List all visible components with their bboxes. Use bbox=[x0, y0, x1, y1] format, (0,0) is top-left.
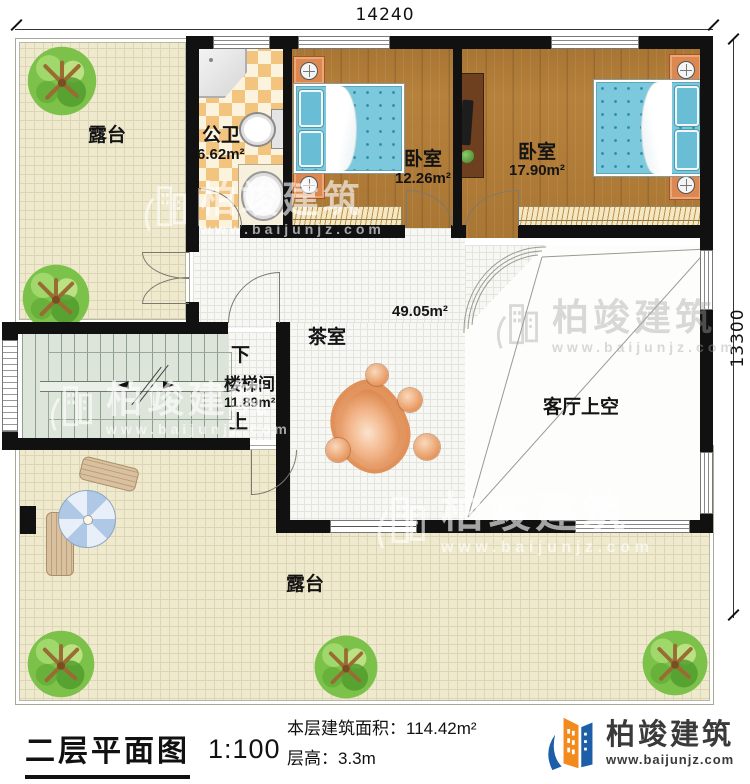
wall-pier bbox=[2, 432, 18, 450]
void-boundary-lines bbox=[460, 243, 713, 523]
tree-icon bbox=[25, 628, 97, 700]
window-icon bbox=[575, 520, 690, 533]
plan-scale: 1:100 bbox=[208, 734, 281, 765]
toilet-bowl-icon bbox=[239, 112, 276, 147]
bedroom-left-area: 12.26m² bbox=[395, 171, 451, 186]
nightstand-lamp-icon bbox=[293, 170, 325, 199]
stair-handrail bbox=[40, 381, 230, 392]
floor-height-value: 3.3m bbox=[338, 749, 376, 768]
bedroom-right-area: 17.90m² bbox=[509, 163, 565, 178]
window-icon bbox=[700, 452, 713, 514]
stool-icon bbox=[414, 434, 440, 460]
terrace-bottom-label: 露台 bbox=[286, 575, 324, 594]
wall-segment bbox=[690, 520, 713, 533]
stair-direction-arrow-icon bbox=[163, 381, 174, 389]
nightstand-lamp-icon bbox=[293, 56, 325, 85]
wall-segment bbox=[276, 322, 290, 533]
stool-icon bbox=[366, 364, 388, 386]
window-icon bbox=[700, 250, 713, 310]
wall-segment bbox=[283, 36, 292, 228]
parasol-icon bbox=[58, 490, 116, 548]
wall-segment bbox=[240, 225, 405, 238]
wall-segment bbox=[15, 322, 228, 334]
floor-area-label: 本层建筑面积： bbox=[287, 719, 406, 738]
terrace-top-label: 露台 bbox=[88, 126, 126, 145]
brand-logo: 柏竣建筑 www.baijunjz.com bbox=[543, 712, 734, 774]
double-bed-icon bbox=[294, 84, 404, 173]
window-icon bbox=[213, 36, 270, 49]
tea-room-area: 49.05m² bbox=[392, 304, 448, 319]
dimension-tick-icon bbox=[707, 19, 719, 31]
shower-drain-icon bbox=[209, 58, 213, 62]
tree-icon bbox=[312, 632, 380, 702]
double-bed-icon bbox=[594, 80, 704, 176]
floor-area-value: 114.42m² bbox=[406, 719, 477, 738]
floor-plan-canvas: 14240 13300 bbox=[0, 0, 750, 784]
dimension-width: 14240 bbox=[330, 5, 440, 25]
brand-name: 柏竣建筑 bbox=[606, 721, 734, 750]
wall-pier bbox=[2, 322, 18, 340]
wall-segment bbox=[276, 520, 330, 533]
wall-segment bbox=[451, 225, 466, 238]
wall-pier bbox=[20, 506, 36, 534]
dimension-height: 13300 bbox=[728, 298, 744, 378]
stool-icon bbox=[398, 388, 422, 412]
stairwell-label: 楼梯间 bbox=[224, 376, 275, 393]
bathroom-label: 公卫 bbox=[202, 126, 240, 145]
wall-segment bbox=[453, 36, 462, 228]
floor-height-line: 层高：3.3m bbox=[287, 744, 376, 769]
window-icon bbox=[2, 340, 18, 432]
stairwell-area: 11.89m² bbox=[224, 395, 275, 409]
sliding-door-icon bbox=[330, 520, 417, 533]
floor-height-label: 层高： bbox=[287, 749, 338, 768]
plan-title: 二层平面图 bbox=[25, 726, 190, 779]
stair-up-label: 上 bbox=[229, 413, 248, 432]
wall-segment bbox=[15, 438, 250, 450]
floor-area-line: 本层建筑面积：114.42m² bbox=[287, 714, 477, 739]
tea-room-label: 茶室 bbox=[308, 328, 346, 347]
wall-segment bbox=[518, 225, 713, 238]
bathroom-area: 6.62m² bbox=[197, 147, 245, 162]
window-icon bbox=[298, 36, 390, 49]
bedroom-left-label: 卧室 bbox=[404, 150, 442, 169]
stool-icon bbox=[326, 438, 350, 462]
tree-icon bbox=[640, 628, 710, 698]
tree-icon bbox=[25, 44, 99, 118]
wall-segment bbox=[417, 520, 575, 533]
dimension-line-top bbox=[15, 29, 713, 30]
window-icon bbox=[551, 36, 639, 49]
sink-icon bbox=[241, 171, 286, 221]
stair-down-label: 下 bbox=[231, 346, 250, 365]
brand-website: www.baijunjz.com bbox=[606, 753, 734, 766]
stair-direction-arrow-icon bbox=[118, 381, 129, 389]
bedroom-right-label: 卧室 bbox=[518, 143, 556, 162]
brand-logo-icon bbox=[543, 712, 599, 774]
living-void-label: 客厅上空 bbox=[543, 398, 619, 417]
